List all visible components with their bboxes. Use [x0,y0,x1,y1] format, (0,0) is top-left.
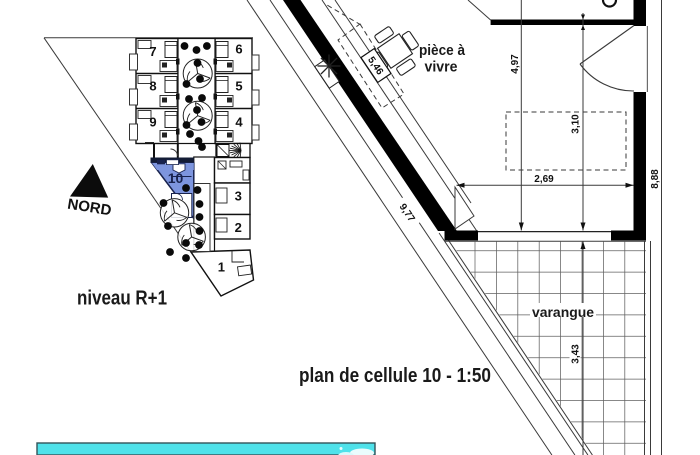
svg-text:1: 1 [218,260,225,275]
svg-text:vivre: vivre [425,59,458,76]
svg-text:7: 7 [149,44,156,59]
svg-text:2,69: 2,69 [534,174,554,185]
svg-text:5: 5 [235,79,242,94]
svg-text:varangue: varangue [532,304,594,320]
svg-text:2: 2 [235,220,242,235]
svg-text:8: 8 [149,79,156,94]
svg-text:plan de cellule 10 - 1:50: plan de cellule 10 - 1:50 [299,365,491,387]
svg-text:niveau R+1: niveau R+1 [77,288,167,310]
svg-text:10: 10 [168,170,184,186]
svg-text:6: 6 [235,42,242,57]
svg-text:3,43: 3,43 [571,344,582,364]
svg-text:3,10: 3,10 [571,114,582,134]
svg-text:4,97: 4,97 [510,54,521,74]
svg-text:3: 3 [235,189,242,204]
svg-text:pièce à: pièce à [419,42,466,59]
svg-text:8,88: 8,88 [650,169,661,189]
svg-text:4: 4 [235,115,243,130]
svg-text:9: 9 [149,115,156,130]
